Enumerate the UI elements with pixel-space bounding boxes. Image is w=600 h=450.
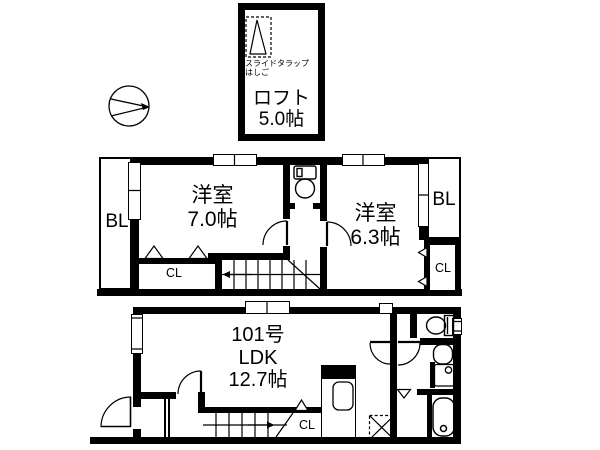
floor-plan: スライドタラップ はしご ロフト 5.0帖 洋室 7.0帖 洋室 6.3帖 BL… [0,0,600,450]
washing-machine-icon [435,365,455,387]
room1-label: 洋室 7.0帖 [155,184,270,232]
entrance-door-arc [101,397,131,427]
stairs-upper [222,260,320,289]
room1-name: 洋室 [155,184,270,208]
room2-name: 洋室 [318,202,433,226]
ldk-label: 101号 LDK 12.7帖 [196,324,320,392]
ldk-name: LDK [196,347,320,370]
ldk-size: 12.7帖 [196,369,320,392]
refrigerator-space-icon [370,416,395,440]
room2-size: 6.3帖 [318,226,433,250]
loft-ladder-label: スライドタラップ はしご [245,59,321,77]
ladder-text-2: はしご [245,68,321,77]
kitchen-sink-icon [333,382,353,410]
closet-2f-left-label: CL [158,266,190,280]
loft-size: 5.0帖 [238,109,325,130]
bathtub-icon [433,398,455,436]
washbasin-icon [434,345,453,365]
loft-label: ロフト 5.0帖 [238,88,325,130]
closet-2f-right-label: CL [427,261,459,275]
door-arc [370,342,420,365]
toilet-icon [294,166,316,198]
room2-label: 洋室 6.3帖 [318,202,433,250]
balcony-right-label: BL [428,189,460,211]
toilet-icon [427,316,454,336]
stairs-lower [203,413,293,437]
balcony-left-label: BL [100,211,134,233]
ladder-text-1: スライドタラップ [245,59,321,68]
room1-size: 7.0帖 [155,208,270,232]
closet-1f-label: CL [291,418,323,432]
loft-name: ロフト [238,88,325,109]
unit-number: 101号 [196,324,320,347]
compass-icon [109,86,150,126]
ladder-icon [246,17,271,57]
